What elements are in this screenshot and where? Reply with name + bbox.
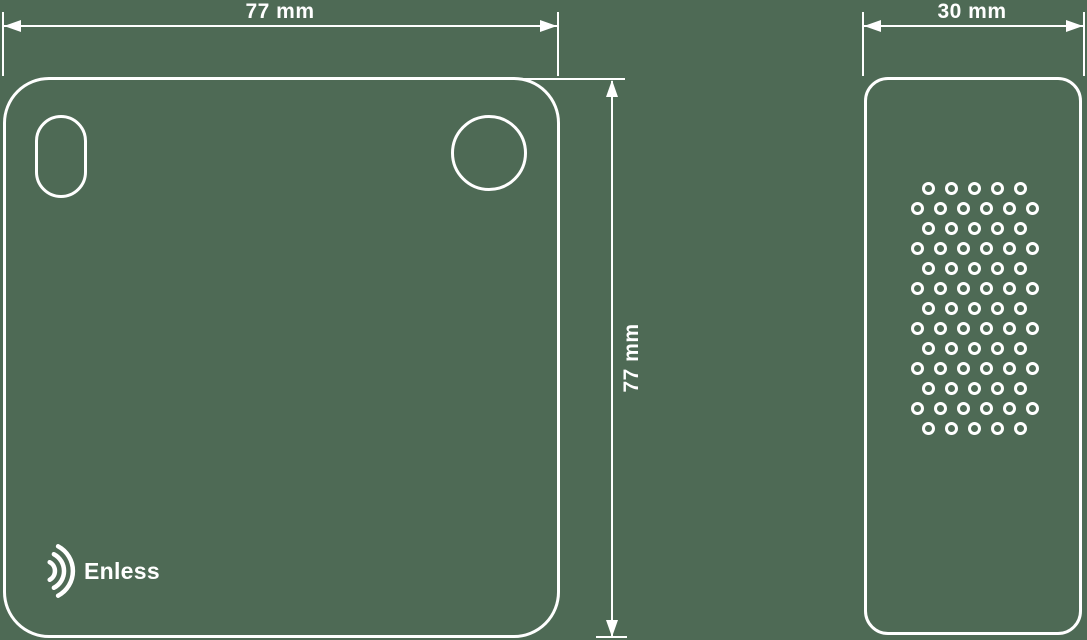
vent-hole: [922, 422, 935, 435]
front-width-dimension-label: 77 mm: [220, 0, 340, 24]
dimension-line-side-width: [864, 25, 1084, 27]
signal-arcs-icon: [38, 541, 80, 601]
vent-hole: [911, 322, 924, 335]
arrowhead-left-icon: [4, 20, 21, 32]
vent-hole: [1003, 322, 1016, 335]
vent-hole: [1014, 342, 1027, 355]
vent-hole: [1026, 322, 1039, 335]
vent-hole: [991, 262, 1004, 275]
extension-line-side-right: [1083, 12, 1085, 76]
arrowhead-right-icon: [1066, 20, 1083, 32]
vent-hole: [991, 302, 1004, 315]
brand-text: Enless: [84, 558, 160, 585]
arrowhead-down-icon: [606, 620, 618, 637]
vent-hole: [911, 402, 924, 415]
vent-hole: [991, 222, 1004, 235]
vent-hole: [1014, 262, 1027, 275]
vent-hole: [922, 302, 935, 315]
vent-hole: [911, 242, 924, 255]
vent-hole: [934, 362, 947, 375]
dimension-line-front-height: [611, 81, 613, 636]
vent-hole: [968, 222, 981, 235]
vent-hole: [922, 382, 935, 395]
arrowhead-right-icon: [540, 20, 557, 32]
dimension-line-front-width: [4, 25, 558, 27]
vent-hole: [1003, 242, 1016, 255]
technical-drawing-canvas: Enless 77 mm 77 mm 30 mm: [0, 0, 1087, 640]
vent-hole: [957, 202, 970, 215]
vent-hole: [968, 182, 981, 195]
vent-hole: [945, 422, 958, 435]
vent-hole: [968, 302, 981, 315]
vent-hole: [1014, 382, 1027, 395]
vent-hole: [945, 262, 958, 275]
vent-hole: [911, 362, 924, 375]
vent-hole: [922, 262, 935, 275]
vent-hole: [991, 342, 1004, 355]
vent-hole: [991, 382, 1004, 395]
vent-hole: [922, 182, 935, 195]
vent-hole: [1026, 282, 1039, 295]
vent-hole: [945, 342, 958, 355]
vent-hole: [1003, 202, 1016, 215]
vent-hole: [945, 182, 958, 195]
vent-hole: [934, 242, 947, 255]
vent-hole: [1026, 362, 1039, 375]
vent-hole: [934, 202, 947, 215]
vent-hole: [957, 322, 970, 335]
vent-hole: [968, 262, 981, 275]
arrowhead-up-icon: [606, 80, 618, 97]
vent-hole: [957, 362, 970, 375]
vent-hole: [1014, 222, 1027, 235]
vent-hole: [1026, 202, 1039, 215]
vent-hole: [991, 182, 1004, 195]
vent-hole: [922, 222, 935, 235]
front-height-dimension-label: 77 mm: [620, 308, 644, 408]
vent-hole: [934, 282, 947, 295]
vent-hole: [980, 362, 993, 375]
vent-hole: [957, 402, 970, 415]
arrowhead-left-icon: [864, 20, 881, 32]
vent-hole: [945, 302, 958, 315]
vent-hole: [980, 402, 993, 415]
vent-hole: [1014, 422, 1027, 435]
vent-hole: [911, 202, 924, 215]
vent-hole: [1014, 302, 1027, 315]
vent-hole: [968, 342, 981, 355]
vent-hole: [968, 382, 981, 395]
vent-hole: [980, 282, 993, 295]
vent-hole: [1003, 362, 1016, 375]
vent-hole: [980, 202, 993, 215]
side-view-outline: [864, 77, 1082, 635]
vent-hole: [980, 322, 993, 335]
vent-hole: [968, 422, 981, 435]
vent-hole: [991, 422, 1004, 435]
vent-hole: [934, 402, 947, 415]
side-width-dimension-label: 30 mm: [912, 0, 1032, 24]
vent-hole: [911, 282, 924, 295]
vent-hole: [1003, 282, 1016, 295]
vent-hole: [945, 222, 958, 235]
oval-mounting-hole: [35, 115, 87, 198]
round-mounting-hole: [451, 115, 527, 191]
vent-hole: [957, 242, 970, 255]
vent-hole: [957, 282, 970, 295]
vent-hole: [922, 342, 935, 355]
vent-hole: [1026, 242, 1039, 255]
vent-hole: [1014, 182, 1027, 195]
vent-hole: [945, 382, 958, 395]
vent-hole: [1026, 402, 1039, 415]
vent-hole: [934, 322, 947, 335]
extension-line-front-right: [557, 12, 559, 76]
vent-hole: [1003, 402, 1016, 415]
vent-hole: [980, 242, 993, 255]
